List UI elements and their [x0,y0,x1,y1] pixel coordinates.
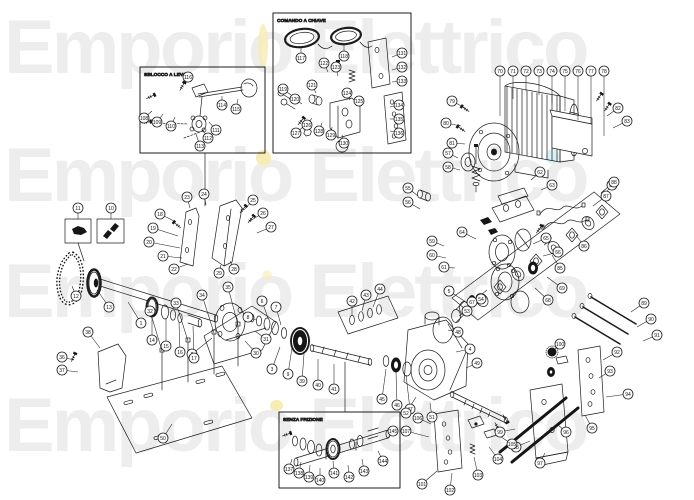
part-balloon-number: 43 [363,293,369,299]
part-balloon-number: 121 [308,83,317,89]
part-balloon-number: 103 [474,473,483,479]
part-balloon-number: 42 [349,299,355,305]
part-balloon-number: 19 [150,226,156,232]
part-balloon-number: 137 [285,467,294,473]
part-balloon-number: 36 [59,355,65,361]
part-balloon-number: 118 [340,54,348,60]
part-balloon-number: 119 [279,87,287,93]
electric-motor [456,82,612,181]
part-balloon-number: 144 [379,459,388,465]
inset-lever-release: SBLOCCO A LEVA [140,67,265,153]
part-balloon-number: 9 [287,372,290,378]
long-screws [572,293,636,344]
part-balloon-number: 34 [199,293,205,299]
part-balloon-number: 6 [261,299,264,305]
part-balloon-number: 80 [443,121,449,127]
part-balloon-number: 73 [536,69,542,75]
part-balloon-number: 23 [184,195,190,201]
part-balloon-number: 133 [398,79,407,85]
part-balloon-number: 3 [271,367,274,373]
part-balloon-number: 89 [641,301,647,307]
part-balloon-number: 58 [445,165,451,171]
oring-set [338,296,411,376]
part-balloon-number: 92 [614,350,620,356]
part-balloon-number: 114 [218,103,226,109]
part-balloon-number: 15 [163,344,169,350]
part-balloon-number: 123 [332,65,341,71]
part-balloon-number: 107 [402,429,411,435]
part-balloon-number: 56 [405,200,411,206]
part-balloon-number: 127 [292,131,301,137]
part-balloon-number: 21 [160,254,166,260]
part-balloon-number: 135 [395,117,404,123]
part-balloon-number: 17 [191,356,197,362]
inset-title: COMANDO A CHIAVE [277,18,327,24]
part-balloon-number: 51 [429,415,435,421]
part-balloon-number: 35 [225,285,231,291]
part-balloon-number: 69 [559,286,565,292]
part-balloon-number: 97 [537,461,543,467]
part-balloon-number: 45 [379,397,385,403]
part-balloon-number: 28 [231,267,237,273]
part-balloon-number: 95 [589,426,595,432]
part-balloon-number: 112 [204,136,212,142]
part-balloon-number: 24 [201,192,207,198]
part-balloon-number: 11 [75,206,80,212]
part-balloon-number: 48 [455,330,461,336]
part-balloon-number: 142 [345,475,354,481]
part-balloon-number: 74 [549,69,555,75]
part-balloon-number: 125 [355,99,364,105]
part-balloon-number: 79 [449,99,455,105]
part-balloon-number: 82 [615,106,621,112]
part-balloon-number: 54 [478,297,484,303]
part-balloon-number: 140 [316,478,325,484]
part-balloon-number: 30 [253,351,259,357]
part-balloon-number: 33 [173,301,179,307]
side-bracket [70,344,126,392]
part-balloon-number: 66 [555,250,561,256]
mounting-bracket-plates [172,153,256,266]
part-balloon-number: 126 [303,123,312,129]
part-balloon-number: 70 [497,69,503,75]
part-balloon-number: 100 [556,342,565,348]
part-balloon-number: 81 [449,141,455,147]
part-balloon-number: 44 [377,287,383,293]
part-balloon-number: 83 [624,119,630,125]
part-balloon-number: 117 [297,56,305,62]
part-balloon-number: 85 [557,266,563,272]
part-balloon-number: 129 [327,133,336,139]
part-balloon-number: 78 [601,69,607,75]
part-balloon-number: 116 [184,75,192,81]
part-balloon-number: 13 [106,305,112,311]
part-balloon-number: 120 [291,97,300,103]
part-balloon-number: 102 [446,488,455,494]
part-balloon-number: 25 [250,198,256,204]
part-balloon-number: 76 [575,69,581,75]
part-balloon-number: 68 [545,298,551,304]
part-balloon-number: 41 [331,387,337,393]
part-balloon-number: 105 [508,442,517,448]
gearbox-housing [404,312,468,400]
part-balloon-number: 46 [394,403,400,409]
part-balloon-number: 67 [469,300,475,306]
part-balloon-number: 109 [153,120,162,126]
part-balloon-number: 131 [398,51,407,57]
part-balloon-number: 108 [140,116,149,122]
part-balloon-number: 93 [607,369,613,375]
part-balloon-number: 106 [414,416,423,422]
part-balloon-number: 122 [320,61,329,67]
part-balloon-number: 71 [510,69,516,75]
part-balloon-number: 49 [474,361,480,367]
inset-title: SENZA FRIZIONE [283,417,324,423]
release-parts [418,144,535,235]
part-balloon-number: 77 [588,69,594,75]
part-balloon-number: 141 [330,471,339,477]
part-balloon-number: 16 [177,350,183,356]
part-balloon-number: 50 [160,436,166,442]
part-balloon-number: 40 [315,383,321,389]
part-balloon-number: 26 [260,211,266,217]
part-balloon-number: 143 [360,469,369,475]
part-balloon-number: 63 [549,183,555,189]
part-balloon-number: 10 [108,206,114,212]
part-balloon-number: 139 [305,475,314,481]
boxed-part-chain-link [97,219,124,243]
part-balloon-number: 7 [275,305,278,311]
inset-title: SBLOCCO A LEVA [144,72,187,78]
part-balloon-number: 8 [247,315,250,321]
part-balloon-number: 101 [418,482,427,488]
part-balloon-number: 12 [73,294,79,300]
wiring [537,203,589,358]
part-balloon-number: 72 [523,69,529,75]
part-balloon-number: 29 [216,271,222,277]
part-balloon-number: 88 [611,180,617,186]
part-balloon-number: 94 [625,392,631,398]
part-balloon-number: 31 [263,337,269,343]
part-balloon-number: 75 [562,69,568,75]
part-balloon-number: 61 [441,265,447,271]
part-balloon-number: 115 [232,107,240,113]
balloon-leader-lines [62,45,657,490]
part-balloon-number: 132 [398,65,407,71]
part-balloon-number: 90 [648,317,654,323]
part-balloon-number: 52 [403,411,409,417]
part-balloon-number: 1 [140,321,143,327]
part-balloon-number: 32 [147,309,153,315]
part-balloon-number: 4 [469,347,472,353]
part-balloon-number: 57 [445,151,451,157]
part-balloon-number: 136 [395,131,404,137]
part-balloon-number: 53 [464,309,470,315]
worm-shaft [310,345,372,366]
pillow-block-flange [204,303,276,364]
part-balloon-number: 138 [295,471,304,477]
part-balloon-number: 87 [603,194,609,200]
part-balloon-number: 111 [212,128,220,134]
part-balloon-number: 104 [494,457,503,463]
part-balloon-number: 22 [171,267,177,273]
exploded-parts-diagram: SBLOCCO A LEVA COMANDO A CHIAVE [0,0,694,500]
part-balloon-number: 55 [405,186,411,192]
part-balloon-number: 134 [395,103,404,109]
part-balloon-number: 60 [429,253,435,259]
part-balloon-number: 59 [429,239,435,245]
part-balloon-number: 113 [196,144,204,150]
part-balloon-number: 14 [149,338,155,344]
part-balloon-number: 145 [389,429,398,435]
part-balloon-number: 20 [146,240,152,246]
part-balloon-number: 130 [340,141,349,147]
part-balloon-number: 96 [563,430,569,436]
part-balloon-number: 18 [157,212,163,218]
part-balloon-number: 27 [268,225,274,231]
part-balloon-number: 39 [299,379,305,385]
part-balloon-number: 91 [654,333,660,339]
part-balloon-number: 38 [85,330,91,336]
part-balloon-number: 124 [343,91,352,97]
part-balloon-number: 62 [537,170,543,176]
part-balloon-number: 128 [315,129,324,135]
part-balloon-number: 86 [581,244,587,250]
part-balloon-number: 65 [543,236,549,242]
part-balloon-number: 99 [497,430,503,436]
part-balloon-number: 5 [448,289,451,295]
part-balloon-number: 110 [167,124,175,130]
part-balloon-number: 64 [459,230,465,236]
part-balloon-number: 37 [59,368,65,374]
